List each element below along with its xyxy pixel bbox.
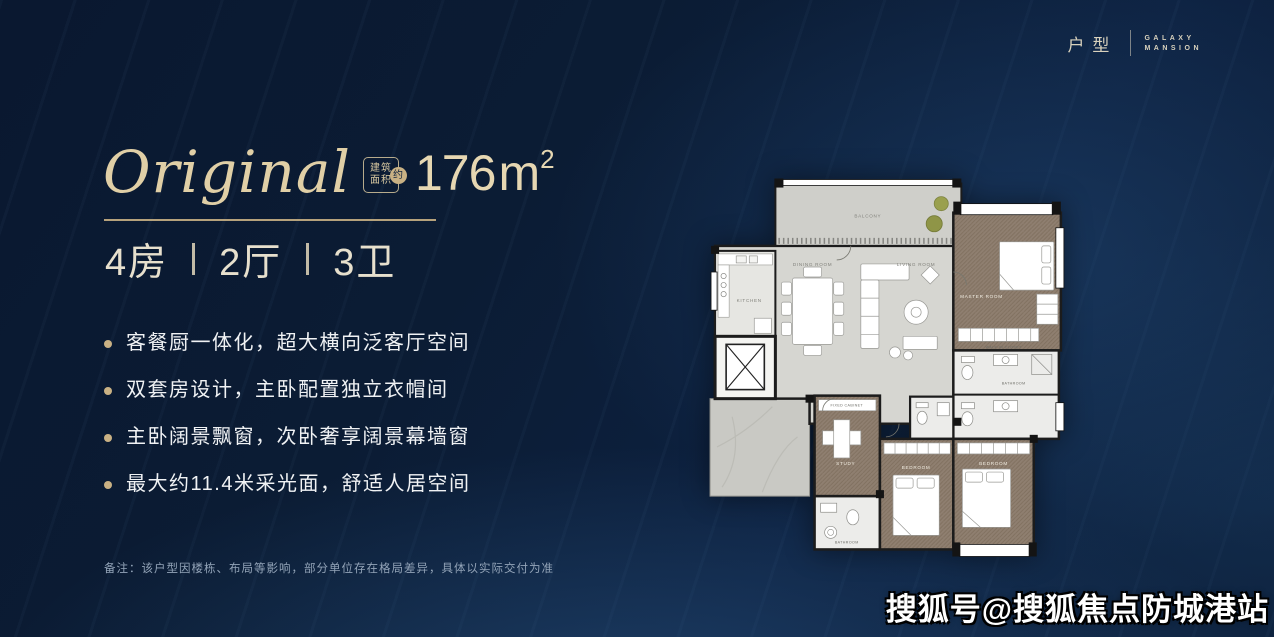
brand-name: GALAXY MANSION xyxy=(1144,35,1202,52)
room-label-closet: WALK-IN CLOSET xyxy=(986,345,1022,349)
feature-item-1: 客餐厨一体化，超大横向泛客厅空间 xyxy=(104,330,470,357)
disclaimer-note: 备注：该户型因楼栋、布局等影响，部分单位存在格局差异，具体以实际交付为准 xyxy=(104,560,554,576)
room-label-living: LIVING ROOM xyxy=(897,262,935,267)
toilet-icon xyxy=(847,510,859,525)
washer-icon xyxy=(825,526,837,538)
room-master xyxy=(953,202,1064,351)
spec-baths: 3卫 xyxy=(333,231,396,286)
feature-text-4: 最大约11.4米采光面，舒适人居空间 xyxy=(126,471,470,498)
bullet-dot-icon xyxy=(104,434,112,442)
room-label-bedroom-b: BEDROOM xyxy=(979,461,1008,466)
room-study xyxy=(815,396,880,497)
header-divider xyxy=(1130,30,1131,56)
category-label: 户型 xyxy=(1067,31,1117,56)
feature-item-3: 主卧阔景飘窗，次卧奢享阔景幕墙窗 xyxy=(104,424,470,451)
tv-cabinet-icon xyxy=(903,336,937,349)
brand-line-1: GALAXY xyxy=(1144,35,1202,42)
area-badge-line-2: 面积 xyxy=(370,175,392,187)
unit-name: Original xyxy=(103,143,351,201)
room-kitchen xyxy=(711,251,775,336)
closet-shelf-icon xyxy=(1037,294,1058,324)
unit-title-row: Original 建筑 面积 约 176m2 xyxy=(103,142,553,202)
plant-icon xyxy=(926,216,942,232)
fridge-icon xyxy=(754,318,771,333)
approx-circle-badge: 约 xyxy=(390,167,407,184)
room-label-bath-a: BATHROOM xyxy=(1002,382,1026,386)
area-badge: 建筑 面积 约 xyxy=(363,157,399,193)
room-label-cabinet: FIXED CABINET xyxy=(831,404,864,408)
gold-divider-rule xyxy=(104,219,436,221)
elevator-shaft xyxy=(715,336,775,398)
floor-plan-svg: BALCONY KITCHEN DINING ROOM LIVING ROOM … xyxy=(702,175,1084,563)
area-badge-line-1: 建筑 xyxy=(370,163,392,175)
sink-icon xyxy=(736,256,746,263)
room-label-bedroom-a: BEDROOM xyxy=(902,465,931,470)
room-label-bath-b: BATHROOM xyxy=(835,540,859,544)
toilet-icon xyxy=(962,412,973,426)
coffee-table-icon xyxy=(904,300,928,324)
room-bathrooms xyxy=(953,350,1064,438)
toilet-icon xyxy=(962,365,973,379)
room-label-study: STUDY xyxy=(836,461,855,466)
feature-item-4: 最大约11.4米采光面，舒适人居空间 xyxy=(104,471,470,498)
spec-divider-1 xyxy=(192,243,195,275)
spec-divider-2 xyxy=(306,243,309,275)
feature-text-2: 双套房设计，主卧配置独立衣帽间 xyxy=(126,377,449,404)
area-superscript: 2 xyxy=(540,144,553,174)
room-terrace xyxy=(710,399,810,497)
room-label-dining: DINING ROOM xyxy=(793,262,833,267)
room-label-kitchen: KITCHEN xyxy=(737,298,762,303)
room-bedroom-b xyxy=(952,439,1036,557)
room-label-master: MASTER ROOM xyxy=(960,294,1003,299)
brand-line-2: MANSION xyxy=(1144,45,1202,52)
layout-spec-row: 4房 2厅 3卫 xyxy=(105,231,396,286)
feature-text-3: 主卧阔景飘窗，次卧奢享阔景幕墙窗 xyxy=(126,424,470,451)
header-brandmark: 户型 GALAXY MANSION xyxy=(1067,30,1202,56)
floor-plan: BALCONY KITCHEN DINING ROOM LIVING ROOM … xyxy=(702,175,1084,563)
feature-item-2: 双套房设计，主卧配置独立衣帽间 xyxy=(104,377,470,404)
plant-icon xyxy=(934,197,948,211)
bullet-dot-icon xyxy=(104,481,112,489)
room-label-balcony: BALCONY xyxy=(854,214,881,219)
room-bath-center xyxy=(910,397,953,439)
room-balcony xyxy=(774,179,961,246)
feature-text-1: 客餐厨一体化，超大横向泛客厅空间 xyxy=(126,330,470,357)
bullet-dot-icon xyxy=(104,387,112,395)
feature-list: 客餐厨一体化，超大横向泛客厅空间 双套房设计，主卧配置独立衣帽间 主卧阔景飘窗，… xyxy=(104,330,470,518)
watermark: 搜狐号@搜狐焦点防城港站 xyxy=(886,584,1269,629)
slide: { "header": { "category": "户型", "brand1"… xyxy=(0,0,1274,637)
toilet-icon xyxy=(917,411,927,424)
area-value: 176m2 xyxy=(415,144,553,202)
spec-rooms: 4房 xyxy=(105,231,168,286)
area-unit: m xyxy=(498,145,539,201)
room-bedroom-a xyxy=(880,439,953,550)
area-number: 176 xyxy=(415,145,495,201)
bullet-dot-icon xyxy=(104,340,112,348)
spec-halls: 2厅 xyxy=(219,231,282,286)
